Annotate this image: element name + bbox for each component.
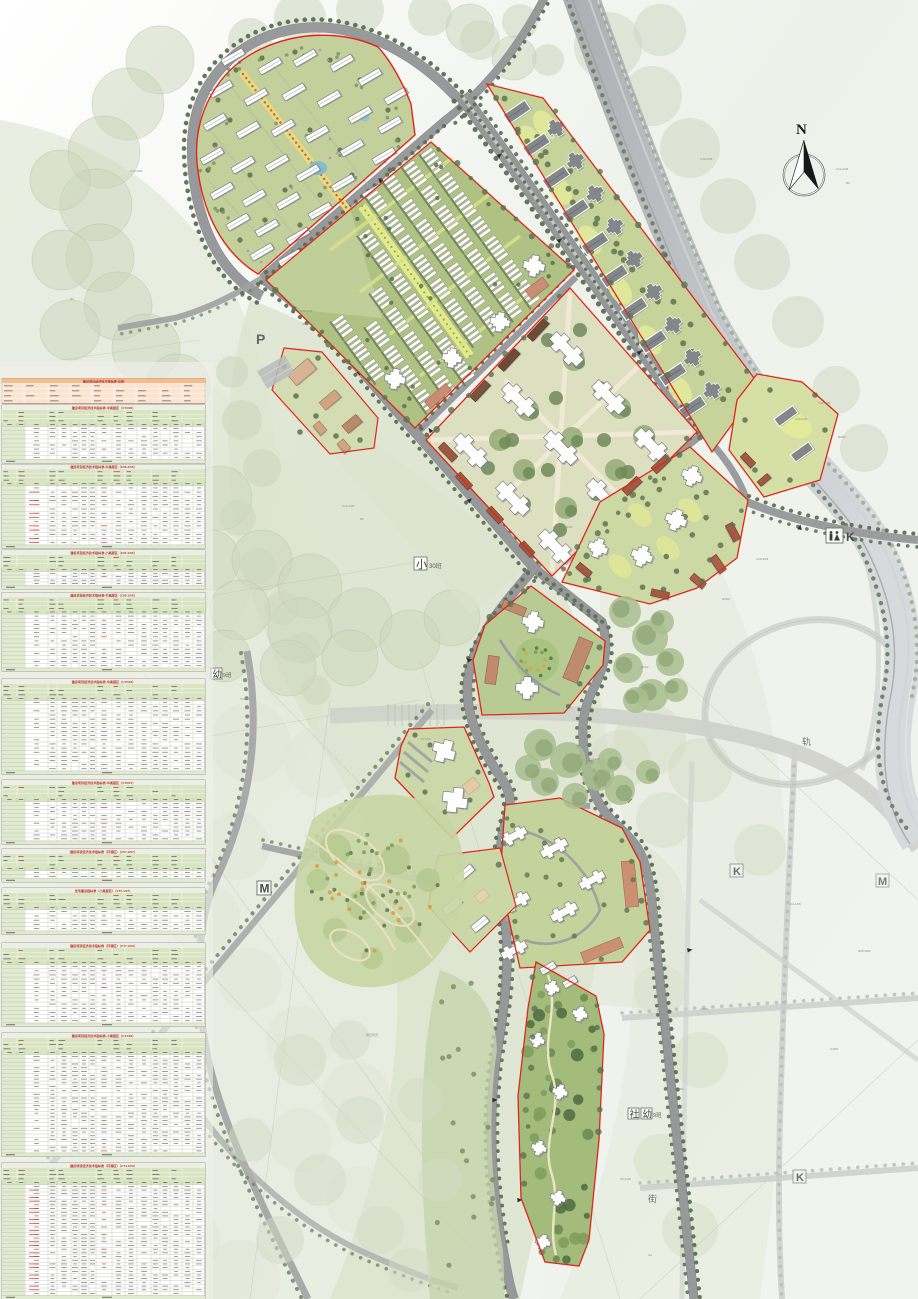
svg-text:C6-1/06: C6-1/06 [620, 1177, 631, 1181]
svg-text:幼: 幼 [643, 1109, 653, 1121]
svg-text:30班: 30班 [429, 562, 442, 570]
svg-text:建设项目经济技术指标表·小高层区（C74/06）: 建设项目经济技术指标表·小高层区（C74/06） [72, 1033, 136, 1038]
svg-text:建设项目经济技术指标表·中高层区（C66-2/06）: 建设项目经济技术指标表·中高层区（C66-2/06） [70, 464, 136, 469]
svg-text:建设项目经济技术指标表·中高层区（C75/06）: 建设项目经济技术指标表·中高层区（C75/06） [72, 679, 136, 684]
svg-text:幼: 幼 [213, 669, 223, 681]
svg-text:R2: R2 [360, 517, 364, 521]
svg-text:R2: R2 [70, 297, 74, 301]
svg-text:K: K [796, 1172, 804, 1184]
svg-text:C31/06: C31/06 [240, 697, 250, 701]
svg-text:建设项目经济技术指标表·中高层区（C76/07）: 建设项目经济技术指标表·中高层区（C76/07） [72, 780, 136, 785]
svg-text:轨: 轨 [802, 736, 811, 747]
svg-text:C12-1/06: C12-1/06 [560, 525, 573, 529]
svg-text:K: K [846, 530, 855, 544]
svg-text:C4-1/06: C4-1/06 [790, 902, 801, 906]
svg-text:-B1R2: -B1R2 [640, 665, 649, 669]
svg-text:C8-2/06: C8-2/06 [648, 897, 659, 901]
svg-text:303/306: 303/306 [302, 322, 313, 326]
svg-text:C12-2/06: C12-2/06 [836, 167, 849, 171]
svg-text:建设项目经济技术指标表（环湖区）（C74-1/06）: 建设项目经济技术指标表（环湖区）（C74-1/06） [70, 1163, 137, 1168]
svg-text:街: 街 [648, 1193, 657, 1204]
svg-text:N: N [796, 122, 807, 138]
svg-text:建设项目经济技术指标表·小高层区（C67-2/06）: 建设项目经济技术指标表·小高层区（C67-2/06） [70, 550, 136, 555]
svg-text:建设项目经济技术指标表（环湖区）（C77-1/06）: 建设项目经济技术指标表（环湖区）（C77-1/06） [70, 943, 137, 948]
svg-text:R2/C2M3: R2/C2M3 [858, 949, 871, 953]
svg-text:建设项目经济技术指标表（环湖区）（C57-2/07）: 建设项目经济技术指标表（环湖区）（C57-2/07） [70, 849, 137, 854]
svg-text:小: 小 [416, 558, 427, 571]
svg-text:C29-2/05: C29-2/05 [818, 401, 831, 405]
svg-text:C8-1/M: C8-1/M [590, 757, 600, 761]
svg-text:C8-1/06: C8-1/06 [420, 737, 431, 741]
svg-text:建设项目经济技术指标表·总表: 建设项目经济技术指标表·总表 [83, 378, 125, 383]
svg-text:假日风景: 假日风景 [366, 1032, 378, 1037]
svg-text:K: K [733, 866, 741, 878]
svg-text:9班: 9班 [223, 671, 232, 679]
svg-text:9班: 9班 [653, 1111, 662, 1119]
svg-text:R2: R2 [680, 1087, 684, 1091]
svg-text:P: P [256, 331, 265, 347]
svg-text:C30-1/06: C30-1/06 [300, 309, 313, 313]
svg-text:C32-0/06: C32-0/06 [700, 157, 713, 161]
svg-text:R2/06: R2/06 [722, 597, 730, 601]
svg-text:社: 社 [630, 1109, 640, 1121]
svg-text:C29-2/06: C29-2/06 [795, 417, 808, 421]
svg-text:建设项目经济技术指标表·中高层区（C66-1/06）: 建设项目经济技术指标表·中高层区（C66-1/06） [70, 592, 136, 597]
svg-text:建设项目经济技术指标表·中高层区（C73/06）: 建设项目经济技术指标表·中高层区（C73/06） [72, 405, 136, 410]
svg-text:C6/06: C6/06 [700, 1007, 708, 1011]
svg-text:C12-1/06: C12-1/06 [342, 504, 355, 508]
svg-text:R2: R2 [846, 181, 850, 185]
svg-text:B2R2: B2R2 [838, 435, 846, 439]
svg-text:G2: G2 [648, 1253, 652, 1257]
svg-text:M: M [878, 876, 887, 888]
svg-text:C44-2/06: C44-2/06 [130, 169, 143, 173]
svg-text:C4/05: C4/05 [830, 1047, 838, 1051]
svg-text:M: M [260, 882, 270, 896]
svg-text:C29-3/06: C29-3/06 [756, 557, 769, 561]
svg-text:住宅建设指标表（小高层区）（C57-1/07）: 住宅建设指标表（小高层区）（C57-1/07） [75, 888, 133, 893]
